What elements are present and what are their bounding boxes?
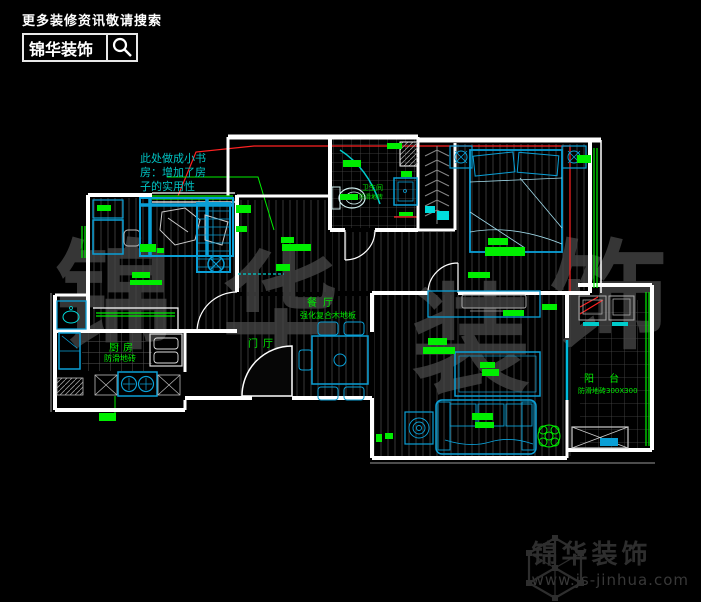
label-block [577,155,591,163]
floor-plan: 锦 华 装 饰 [0,0,701,601]
washer-caption-2 [612,322,628,326]
annotation-line-3: 子的实用性 [140,179,195,193]
label-block [236,226,247,232]
label-block [428,338,447,345]
search-icon [108,35,136,60]
label-block [475,422,494,428]
burner-crosses [123,378,152,390]
label-block [276,264,290,271]
label-block [401,171,412,177]
label-block [282,244,311,251]
label-block [387,143,402,149]
footer-logo: 锦华装饰 www.js-jinhua.com [524,534,689,589]
cabinet-x-2-cross [158,375,180,395]
balcony-label: 阳 台 [584,372,625,385]
label-block [423,347,455,354]
annotation-line-2: 房：增加了房 [140,165,206,179]
label-block [130,280,162,285]
entry-label: 门厅 [248,337,278,350]
wall-column-hatched [400,142,418,166]
dining-floor-label: 强化复合木地板 [300,310,356,320]
balcony-floor-label: 防滑地砖300X300 [578,386,638,395]
closet-box-1 [425,206,435,213]
bath-floor-label: 防滑地砖 [359,193,383,201]
floorplan-page: { "header": { "tagline": "更多装修资讯敬请搜索", "… [0,0,701,601]
cube-logo-icon [524,534,586,602]
label-block [157,248,164,253]
cabinet-x-1-cross [95,375,117,395]
label-block [340,194,358,200]
closet-box-2 [437,211,449,220]
label-block [485,247,525,256]
label-block [99,413,116,421]
header-brand-box: 锦华装饰 [22,33,138,62]
counter-hatched [57,378,83,395]
label-block [468,272,490,278]
label-block [503,310,524,316]
label-block [281,237,294,243]
label-block [140,244,156,252]
kitchen-floor-label: 防滑地砖 [104,353,136,363]
label-block [542,304,557,310]
label-block [376,434,382,442]
kitchen-label: 厨房 [109,341,137,354]
label-block [482,369,499,376]
label-block [132,272,150,278]
annotation-line-1: 此处做成小书 [140,151,206,165]
dining-label: 餐厅 [307,296,339,309]
header-brand: 锦华装饰 [24,36,106,60]
label-block [480,362,495,368]
header-tagline: 更多装修资讯敬请搜索 [22,10,162,29]
label-block [385,433,393,439]
header-logo: 更多装修资讯敬请搜索 锦华装饰 [22,10,162,62]
label-block [97,205,111,211]
label-block [488,238,508,245]
bath-label: 卫生间 [362,183,383,192]
balcony-cabinet-drawer [600,438,618,446]
label-block [399,212,413,216]
label-block [236,205,251,213]
label-block [343,160,361,167]
closet [425,146,449,224]
label-block [472,413,493,420]
washer-caption-1 [583,322,599,326]
designer-annotation: 此处做成小书 房：增加了房 子的实用性 [140,151,206,193]
